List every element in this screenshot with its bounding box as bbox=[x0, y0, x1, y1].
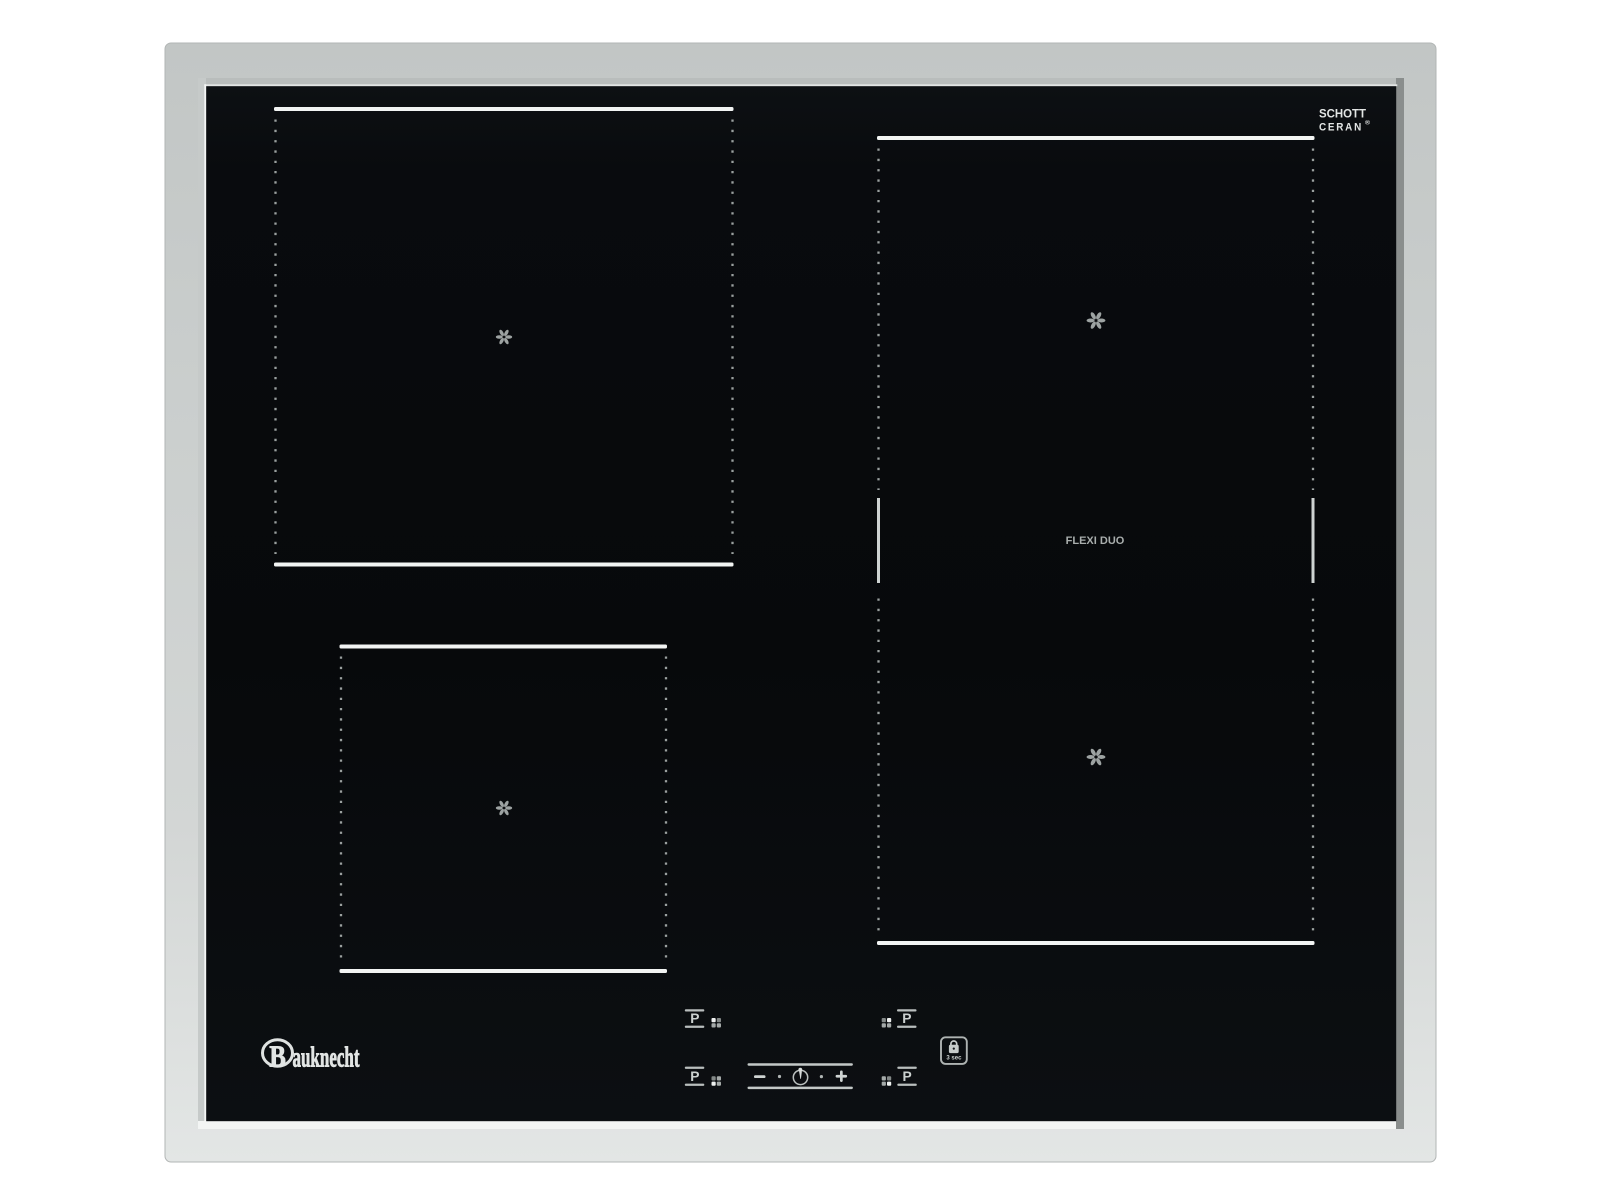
svg-text:P: P bbox=[690, 1069, 699, 1084]
svg-text:SCHOTT: SCHOTT bbox=[1319, 107, 1367, 121]
svg-text:P: P bbox=[902, 1069, 911, 1084]
svg-text:CERAN: CERAN bbox=[1319, 122, 1363, 134]
svg-text:®: ® bbox=[1365, 119, 1370, 127]
svg-text:B: B bbox=[269, 1039, 286, 1074]
svg-text:auknecht: auknecht bbox=[293, 1042, 360, 1074]
svg-text:3 sec: 3 sec bbox=[946, 1055, 962, 1061]
svg-text:P: P bbox=[902, 1011, 911, 1026]
svg-text:FLEXI DUO: FLEXI DUO bbox=[1066, 535, 1125, 547]
svg-text:P: P bbox=[690, 1011, 699, 1026]
